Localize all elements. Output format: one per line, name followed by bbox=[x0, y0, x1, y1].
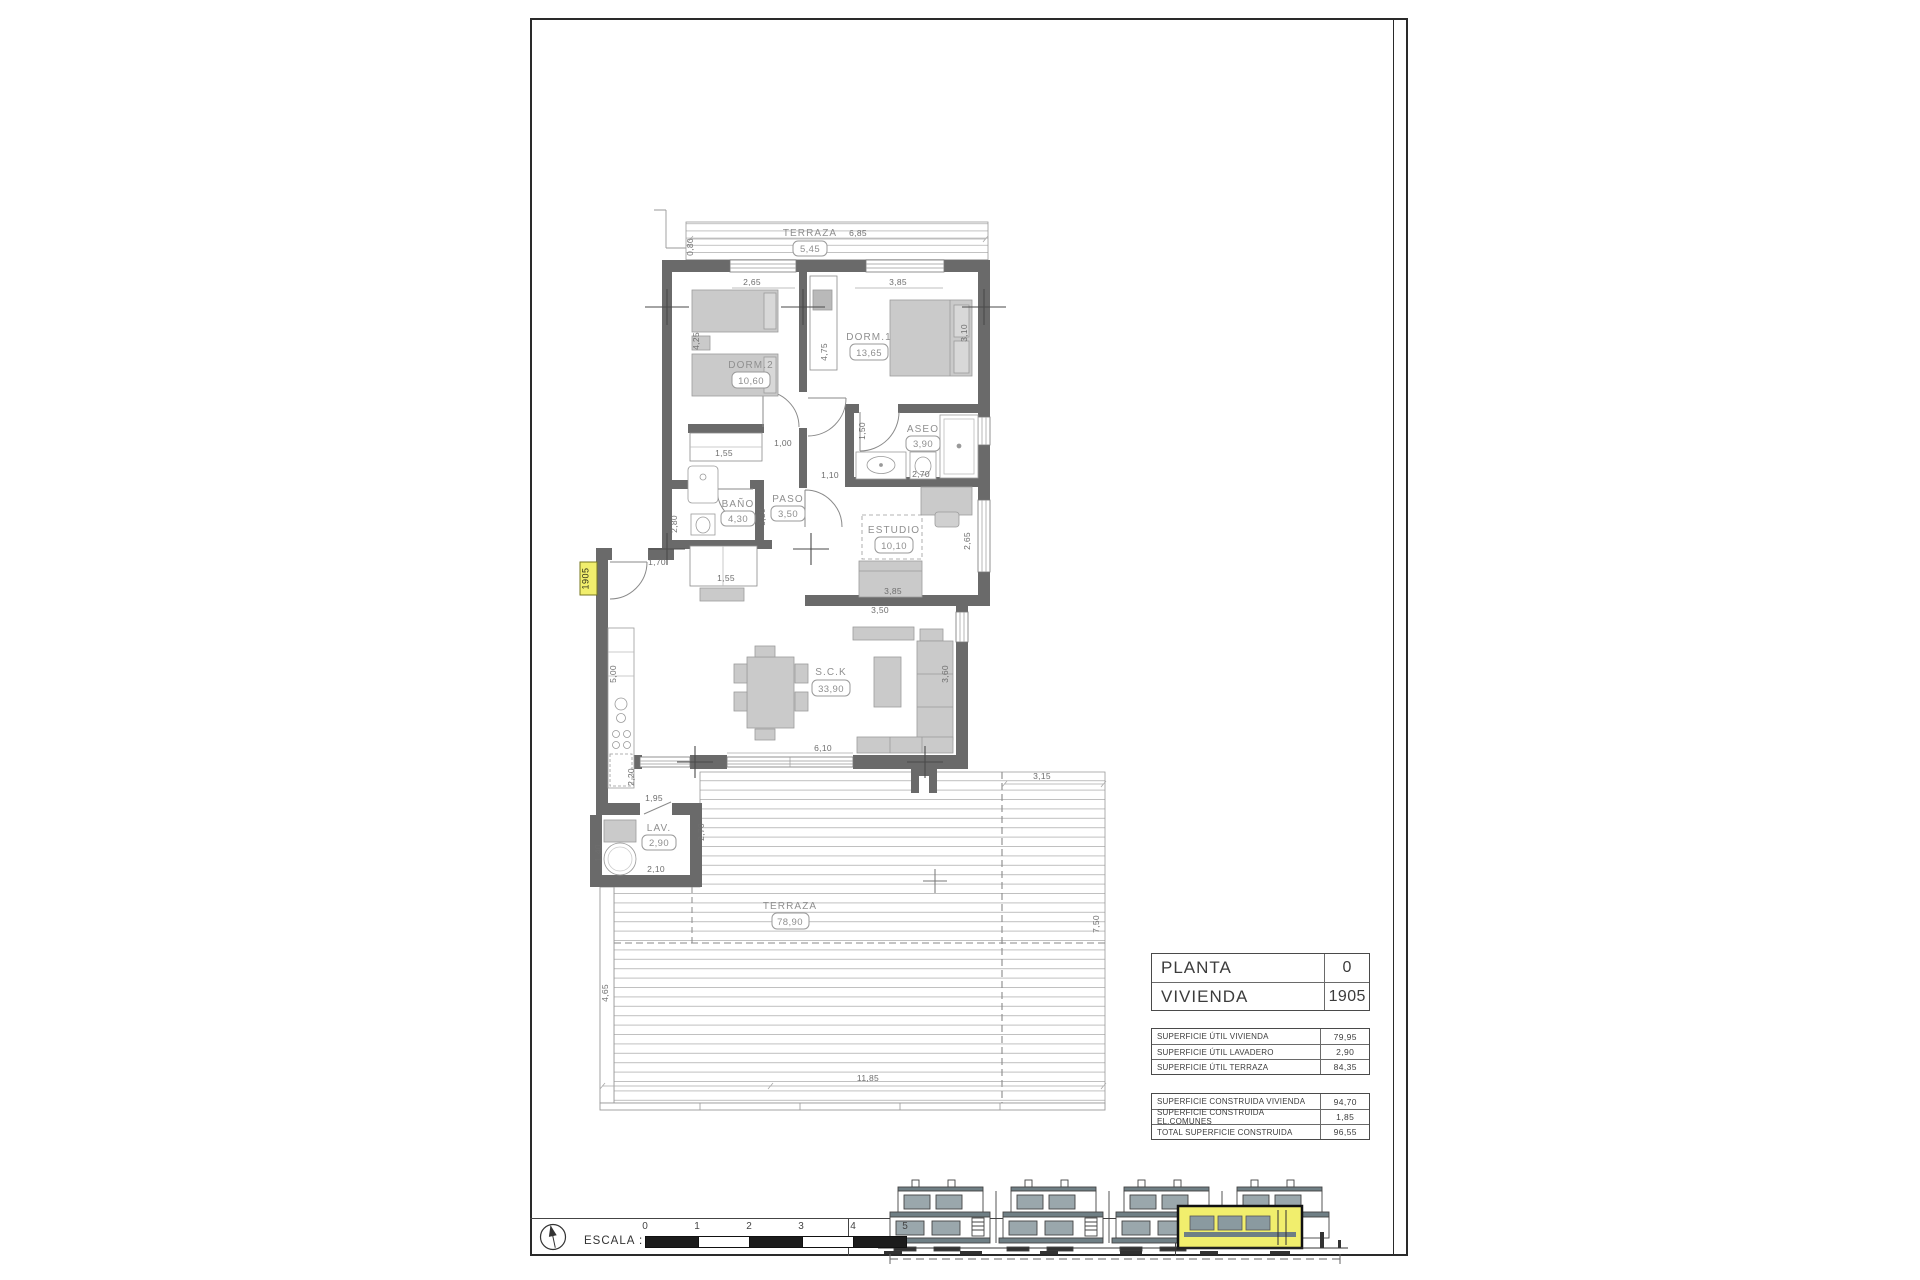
lav-label: LAV. bbox=[647, 823, 671, 834]
dim-top-length: 6,85 bbox=[849, 228, 867, 238]
scale-bar bbox=[645, 1236, 907, 1248]
planta-label: PLANTA bbox=[1152, 954, 1325, 982]
superficie-construida-table: SUPERFICIE CONSTRUIDA VIVIENDA 94,70 SUP… bbox=[1151, 1093, 1370, 1140]
estudio-area: 10,10 bbox=[881, 541, 907, 552]
drawing-page: TERRAZA 5,45 DORM.2 10,60 DORM.1 13,65 A… bbox=[0, 0, 1920, 1280]
table-row: SUPERFICIE ÚTIL TERRAZA 84,35 bbox=[1152, 1059, 1369, 1074]
table-row: PLANTA 0 bbox=[1152, 954, 1369, 982]
vivienda-value: 1905 bbox=[1325, 983, 1369, 1010]
dim-terrace-left: 4,65 bbox=[600, 984, 610, 1002]
bano-label: BAÑO bbox=[722, 497, 755, 510]
dim-closet2: 1,55 bbox=[717, 573, 735, 583]
util-lavadero-label: SUPERFICIE ÚTIL LAVADERO bbox=[1152, 1045, 1321, 1059]
scale-segment bbox=[698, 1237, 750, 1247]
sck-label: S.C.K bbox=[815, 667, 847, 678]
util-vivienda-label: SUPERFICIE ÚTIL VIVIENDA bbox=[1152, 1029, 1321, 1044]
table-row: SUPERFICIE CONSTRUIDA EL.COMUNES 1,85 bbox=[1152, 1109, 1369, 1124]
dim-lav-h: 1,40 bbox=[593, 844, 603, 862]
terraza-top-area: 5,45 bbox=[800, 244, 820, 255]
scale-tick: 3 bbox=[798, 1221, 804, 1232]
dim-lav-top: 1,95 bbox=[645, 793, 663, 803]
dim-lav-w: 2,10 bbox=[647, 864, 665, 874]
cons-vivienda-value: 94,70 bbox=[1321, 1094, 1369, 1109]
dim-window-w: 6,10 bbox=[814, 743, 832, 753]
dorm1-label: DORM.1 bbox=[846, 332, 892, 343]
dim-hall-h: 4,75 bbox=[819, 343, 829, 361]
planta-value: 0 bbox=[1325, 954, 1369, 982]
vivienda-label: VIVIENDA bbox=[1152, 983, 1325, 1010]
scale-segment bbox=[802, 1237, 854, 1247]
table-row: VIVIENDA 1905 bbox=[1152, 982, 1369, 1010]
terraza-area: 78,90 bbox=[777, 917, 803, 928]
unit-tag: 1905 bbox=[580, 562, 597, 595]
dorm2-area: 10,60 bbox=[738, 376, 764, 387]
dim-estudio-h: 2,65 bbox=[962, 532, 972, 550]
dim-terrace-right: 7,50 bbox=[1091, 915, 1101, 933]
cons-comunes-label: SUPERFICIE CONSTRUIDA EL.COMUNES bbox=[1152, 1110, 1321, 1124]
dim-closet1: 1,55 bbox=[715, 448, 733, 458]
unit-tag-number: 1905 bbox=[581, 567, 591, 589]
dim-aseo-w: 2,70 bbox=[912, 469, 930, 479]
util-vivienda-value: 79,95 bbox=[1321, 1029, 1369, 1044]
dim-lav-r: 2,70 bbox=[696, 823, 706, 841]
table-row: SUPERFICIE ÚTIL VIVIENDA 79,95 bbox=[1152, 1029, 1369, 1044]
util-terraza-label: SUPERFICIE ÚTIL TERRAZA bbox=[1152, 1060, 1321, 1074]
scale-tick: 0 bbox=[642, 1221, 648, 1232]
cons-vivienda-label: SUPERFICIE CONSTRUIDA VIVIENDA bbox=[1152, 1094, 1321, 1109]
util-lavadero-value: 2,90 bbox=[1321, 1045, 1369, 1059]
terraza-label: TERRAZA bbox=[763, 901, 817, 912]
table-row: TOTAL SUPERFICIE CONSTRUIDA 96,55 bbox=[1152, 1124, 1369, 1139]
dim-terrace-bottom: 11,85 bbox=[857, 1073, 879, 1083]
table-row: SUPERFICIE CONSTRUIDA VIVIENDA 94,70 bbox=[1152, 1094, 1369, 1109]
scale-segment bbox=[646, 1237, 698, 1247]
dim-aseo-door: 1,50 bbox=[857, 422, 867, 440]
dim-estudio-w: 3,85 bbox=[884, 586, 902, 596]
scale-tick: 1 bbox=[694, 1221, 700, 1232]
scale-tick: 5 bbox=[902, 1221, 908, 1232]
title-block: PLANTA 0 VIVIENDA 1905 bbox=[1151, 953, 1370, 1011]
dim-sofa-h: 3,60 bbox=[940, 665, 950, 683]
sck-area: 33,90 bbox=[818, 684, 844, 695]
dim-top-h: 0,80 bbox=[685, 238, 695, 256]
dim-corr2: 1,10 bbox=[821, 470, 839, 480]
estudio-label: ESTUDIO bbox=[868, 525, 920, 536]
paso-area: 3,50 bbox=[778, 509, 798, 520]
dim-dorm1-h: 3,10 bbox=[959, 324, 969, 342]
cons-total-value: 96,55 bbox=[1321, 1125, 1369, 1139]
dim-bano-h: 2,80 bbox=[669, 515, 679, 533]
dim-sofa-w: 3,50 bbox=[871, 605, 889, 615]
scale-tick: 4 bbox=[850, 1221, 856, 1232]
cons-comunes-value: 1,85 bbox=[1321, 1110, 1369, 1124]
bano-area: 4,30 bbox=[728, 514, 748, 525]
dorm1-area: 13,65 bbox=[856, 348, 882, 359]
north-arrow-icon bbox=[536, 1220, 570, 1254]
site-elevation bbox=[870, 1175, 1355, 1275]
scale-segment bbox=[750, 1237, 802, 1247]
aseo-area: 3,90 bbox=[913, 439, 933, 450]
dim-dorm2-w: 2,65 bbox=[743, 277, 761, 287]
cons-total-label: TOTAL SUPERFICIE CONSTRUIDA bbox=[1152, 1125, 1321, 1139]
paso-label: PASO bbox=[772, 494, 803, 505]
dim-dorm1-w: 3,85 bbox=[889, 277, 907, 287]
lav-area: 2,90 bbox=[649, 838, 669, 849]
dim-kitchen-h: 5,00 bbox=[608, 665, 618, 683]
dim-dorm2-h: 4,25 bbox=[691, 332, 701, 350]
frame-inner-right-line bbox=[1393, 18, 1394, 1256]
scale-tick: 2 bbox=[746, 1221, 752, 1232]
dorm2-label: DORM.2 bbox=[728, 360, 774, 371]
floor-plan: TERRAZA 5,45 DORM.2 10,60 DORM.1 13,65 A… bbox=[540, 190, 1160, 1120]
dim-corr1: 1,00 bbox=[774, 438, 792, 448]
table-row: SUPERFICIE ÚTIL LAVADERO 2,90 bbox=[1152, 1044, 1369, 1059]
dim-entry: 1,70 bbox=[648, 557, 666, 567]
scale-segment bbox=[854, 1237, 906, 1247]
unit-highlight bbox=[1178, 1206, 1302, 1248]
escala-label: ESCALA : bbox=[584, 1235, 643, 1247]
terraza-top-label: TERRAZA bbox=[783, 228, 837, 239]
dim-pass-h: 2,20 bbox=[626, 768, 636, 786]
aseo-label: ASEO bbox=[907, 424, 939, 435]
util-terraza-value: 84,35 bbox=[1321, 1060, 1369, 1074]
dim-paso-h: 3,50 bbox=[757, 508, 767, 526]
dim-terrace-top: 3,15 bbox=[1033, 771, 1051, 781]
superficie-util-table: SUPERFICIE ÚTIL VIVIENDA 79,95 SUPERFICI… bbox=[1151, 1028, 1370, 1075]
